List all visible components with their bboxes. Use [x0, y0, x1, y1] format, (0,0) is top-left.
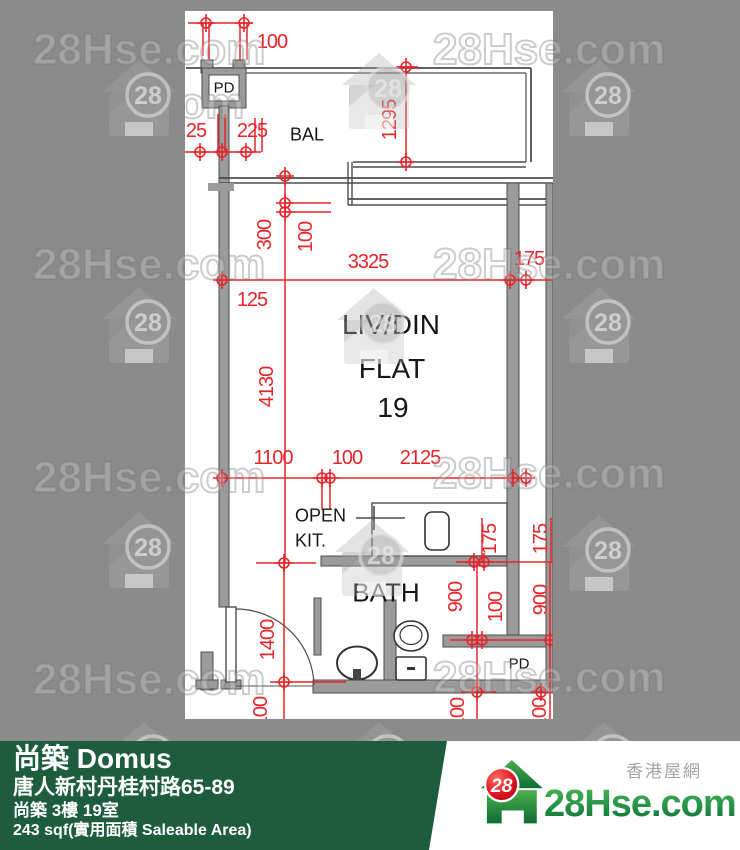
dim-1295: 1295	[380, 100, 400, 141]
screenshot-root: PD BAL LIV/DIN FLAT 19 OPEN KIT. BATH PD…	[0, 0, 740, 850]
dim-125: 125	[237, 290, 267, 310]
dim-100-top: 100	[257, 32, 287, 52]
dim-4130: 4130	[257, 367, 277, 408]
basin	[337, 647, 377, 681]
watermark-house-icon	[100, 285, 178, 367]
dim-100-br: 100	[530, 698, 550, 719]
dim-100-bm: 100	[448, 698, 468, 719]
dim-1100: 1100	[253, 448, 292, 468]
logo-house-icon: 28	[474, 755, 546, 829]
watermark-house-icon	[560, 58, 638, 140]
label-kitchen: KIT.	[295, 531, 326, 552]
watermark-text: 28Hse.com	[185, 82, 244, 126]
label-flat: FLAT	[359, 353, 425, 385]
dim-900-left: 900	[446, 582, 466, 612]
label-pd-bottom: PD	[509, 656, 530, 673]
label-balcony: BAL	[290, 125, 324, 146]
watermark-house-icon	[560, 285, 638, 367]
site-name-chinese: 香港屋網	[626, 757, 702, 782]
logo-badge-text: 28	[490, 775, 513, 797]
dim-300: 300	[255, 220, 275, 250]
estate-title: 尚築 Domus	[13, 743, 172, 775]
floorplan-image: PD BAL LIV/DIN FLAT 19 OPEN KIT. BATH PD…	[185, 11, 553, 719]
dim-3325: 3325	[348, 252, 389, 272]
site-logo-text: 28Hse.com	[544, 783, 736, 826]
dim-100-window: 100	[296, 222, 316, 252]
toilet	[394, 621, 428, 680]
dim-100-mid: 100	[332, 448, 362, 468]
dim-100-bl: 100	[251, 697, 271, 719]
dim-2125: 2125	[400, 448, 441, 468]
site-logo[interactable]: 28 香港屋網 28Hse.com	[460, 741, 740, 850]
dim-175-a: 175	[480, 524, 500, 554]
label-livdin: LIV/DIN	[342, 309, 440, 341]
label-open-kitchen: OPEN	[295, 506, 346, 527]
dim-100-pd: 100	[486, 592, 506, 622]
estate-unit: 尚築 3樓 19室	[13, 801, 119, 821]
estate-area: 243 sqf(實用面積 Saleable Area)	[13, 822, 252, 840]
dim-900-right: 900	[531, 585, 551, 615]
watermark-house-icon	[100, 510, 178, 592]
label-flat-number: 19	[377, 392, 408, 424]
watermark-house-icon	[560, 513, 638, 595]
estate-address: 唐人新村丹桂村路65-89	[13, 776, 235, 800]
watermark-house-icon	[100, 58, 178, 140]
dim-175-b: 175	[531, 524, 551, 554]
dim-1400: 1400	[258, 620, 278, 661]
label-bath: BATH	[352, 578, 419, 609]
dim-175-right: 175	[514, 249, 544, 269]
